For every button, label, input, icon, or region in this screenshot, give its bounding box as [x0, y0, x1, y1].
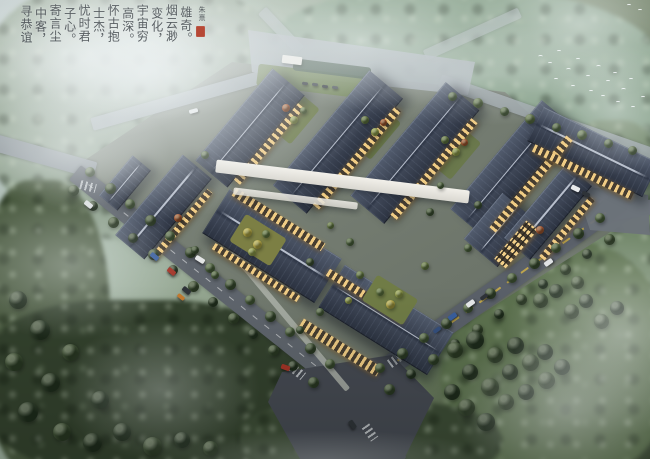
tree [268, 345, 279, 356]
calligraphy-signature: 朱熹 [197, 6, 207, 22]
tree [41, 373, 60, 392]
tree [474, 201, 482, 209]
tree [437, 182, 444, 189]
calligraphy-column: 怀古抱 [107, 4, 119, 92]
tree [265, 311, 276, 322]
tree [245, 295, 255, 305]
calligraphy-column: 寄言尘 [49, 4, 61, 92]
tree [346, 238, 354, 246]
tree [253, 240, 262, 249]
tree [419, 333, 429, 343]
tree [18, 402, 38, 422]
calligraphy-column: 变化， [151, 7, 163, 92]
tree [395, 290, 403, 298]
calligraphy-column: 宇宙穷 [136, 4, 148, 92]
tree [53, 423, 71, 441]
tree [426, 208, 434, 216]
tree [428, 354, 439, 365]
tree [494, 309, 504, 319]
tree [397, 348, 408, 359]
calligraphy-column: 子心。 [64, 7, 76, 92]
tree [356, 271, 364, 279]
tree [285, 327, 295, 337]
aerial-campus-rendering: 雄奇。烟云渺变化，宇宙穷高深。怀古抱士杰，忧时君子心。寄言尘中客，寻恭谊 朱熹 [0, 0, 650, 459]
tree [305, 343, 316, 354]
tree [327, 222, 334, 229]
tree [306, 258, 314, 266]
tree [447, 342, 463, 358]
tree [380, 119, 387, 126]
tree [211, 271, 219, 279]
tree [384, 384, 395, 395]
tree [441, 136, 449, 144]
tree [345, 297, 352, 304]
tree [325, 359, 335, 369]
calligraphy-poem: 雄奇。烟云渺变化，宇宙穷高深。怀古抱士杰，忧时君子心。寄言尘中客，寻恭谊 [20, 4, 192, 92]
tree [248, 248, 256, 256]
tree [375, 363, 385, 373]
tree [5, 353, 23, 371]
tree [452, 148, 460, 156]
tree [225, 279, 236, 290]
tree [208, 297, 218, 307]
tree [595, 213, 605, 223]
tree [464, 244, 472, 252]
tree [228, 313, 239, 324]
calligraphy-column: 高深。 [122, 7, 134, 92]
calligraphy-column: 寻恭谊 [20, 5, 32, 92]
tree [376, 288, 384, 296]
tree [262, 230, 270, 238]
tree [371, 128, 379, 136]
calligraphy-column: 士杰， [93, 7, 105, 92]
tree [308, 377, 319, 388]
calligraphy-column: 雄奇。 [180, 6, 192, 92]
tree [243, 228, 252, 237]
tree [573, 228, 584, 239]
calligraphy-column: 烟云渺 [165, 4, 177, 92]
tree [421, 262, 429, 270]
tree [296, 326, 304, 334]
tree [191, 246, 199, 254]
tree [248, 329, 258, 339]
calligraphy-column: 忧时君 [78, 4, 90, 92]
tree [536, 226, 544, 234]
tree [461, 139, 468, 146]
tree [466, 331, 484, 349]
tree [316, 308, 324, 316]
tree [386, 300, 395, 309]
tree [507, 273, 517, 283]
tree [406, 369, 416, 379]
red-seal-stamp [196, 26, 205, 37]
calligraphy-column: 中客， [35, 7, 47, 92]
